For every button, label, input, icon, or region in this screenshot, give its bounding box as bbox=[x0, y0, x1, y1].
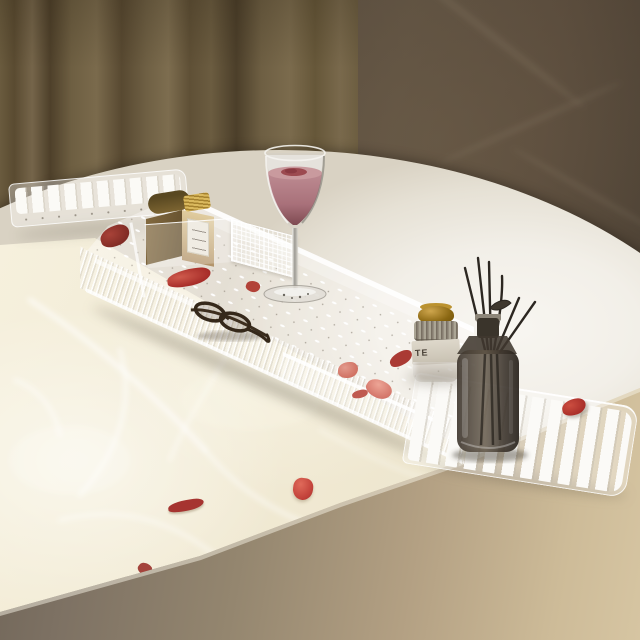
acrylic-book-slot bbox=[145, 218, 238, 268]
reed-diffuser bbox=[445, 250, 543, 465]
gold-page-edges bbox=[183, 192, 211, 212]
wine-glass bbox=[248, 136, 348, 316]
bathroom-scene: TE bbox=[0, 0, 640, 640]
